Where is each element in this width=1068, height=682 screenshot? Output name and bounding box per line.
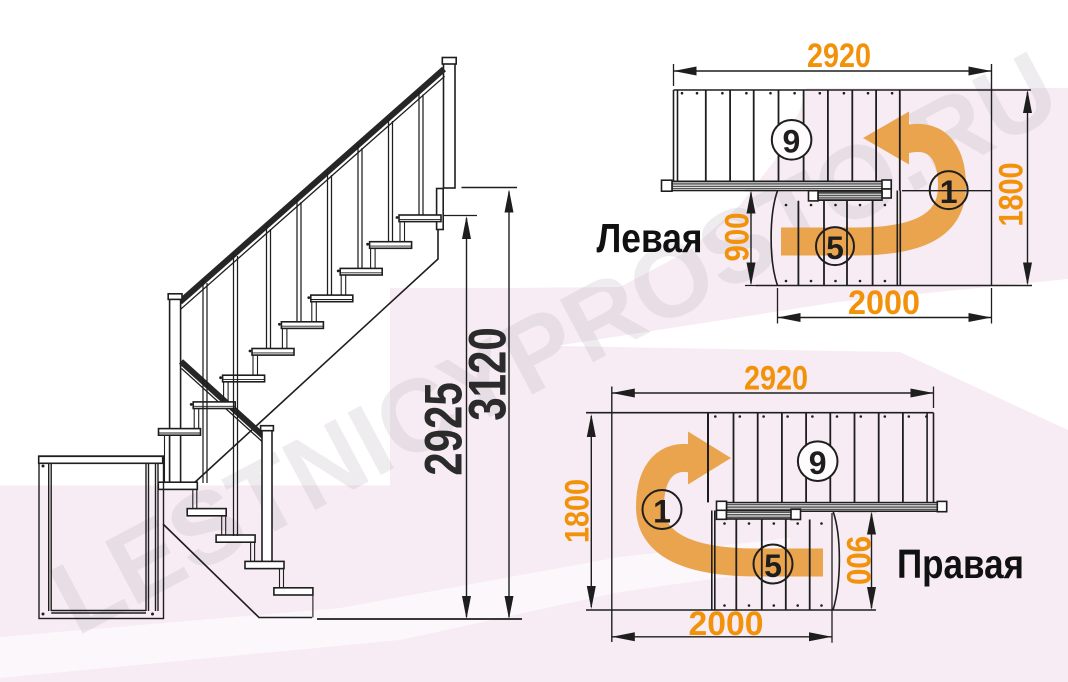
svg-text:2920: 2920 [807,37,871,75]
svg-text:Правая: Правая [897,541,1024,587]
svg-text:5: 5 [826,230,844,266]
svg-text:9: 9 [783,124,801,160]
svg-text:1: 1 [940,174,958,210]
svg-text:900: 900 [718,213,756,262]
svg-text:1800: 1800 [993,163,1031,227]
svg-text:900: 900 [839,536,877,585]
svg-text:2000: 2000 [689,605,764,643]
svg-text:1800: 1800 [558,479,596,543]
svg-text:9: 9 [809,445,827,481]
svg-text:Левая: Левая [597,215,703,261]
svg-text:5: 5 [764,548,782,584]
svg-text:3120: 3120 [459,327,518,420]
svg-text:2000: 2000 [848,284,920,322]
svg-text:1: 1 [653,494,671,530]
svg-text:2920: 2920 [744,360,808,398]
